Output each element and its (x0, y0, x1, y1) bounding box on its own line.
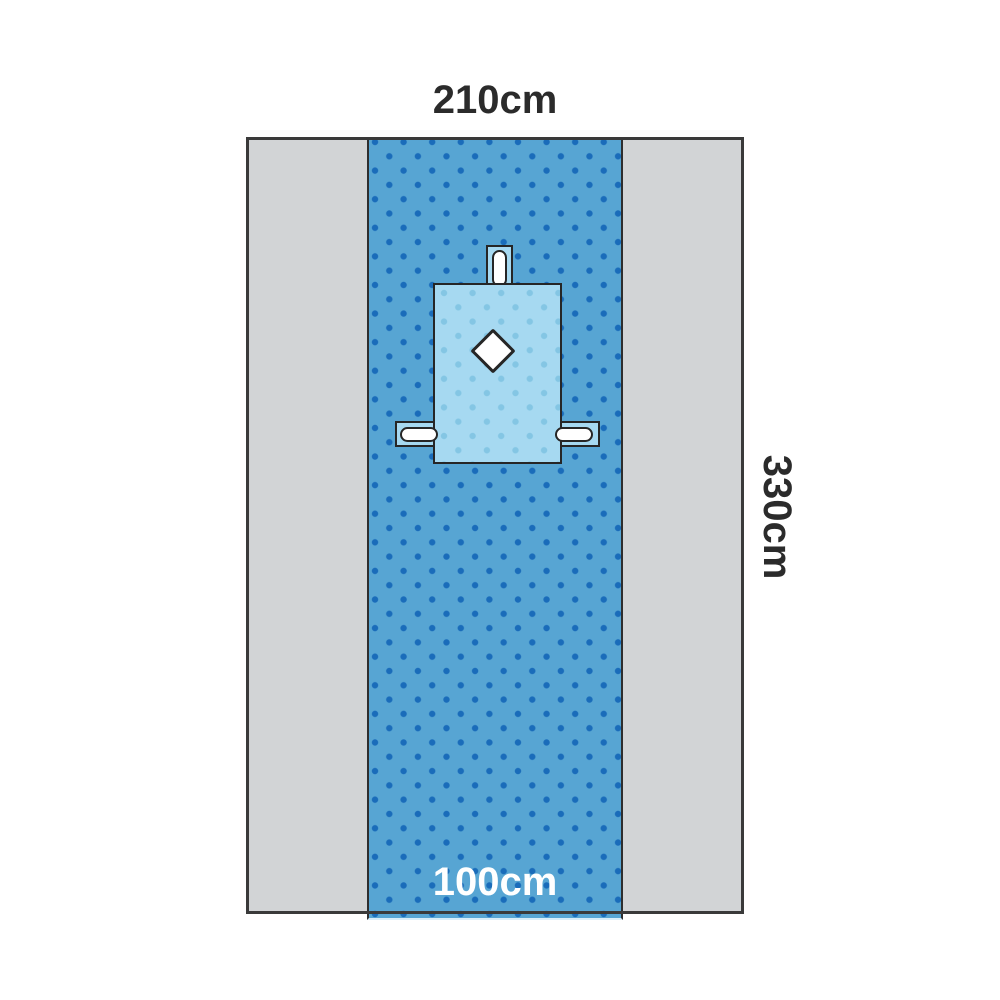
strip-width-dimension-label: 100cm (367, 862, 623, 902)
drape-diagram: 210cm 330cm 100cm (0, 0, 1000, 1000)
tube-holder-slot-left (400, 427, 438, 442)
tube-holder-slot-right (555, 427, 593, 442)
tube-holder-slot-top (492, 250, 507, 287)
height-dimension-label: 330cm (757, 455, 797, 580)
absorbent-pad (433, 283, 562, 464)
width-dimension-label: 210cm (246, 80, 744, 120)
